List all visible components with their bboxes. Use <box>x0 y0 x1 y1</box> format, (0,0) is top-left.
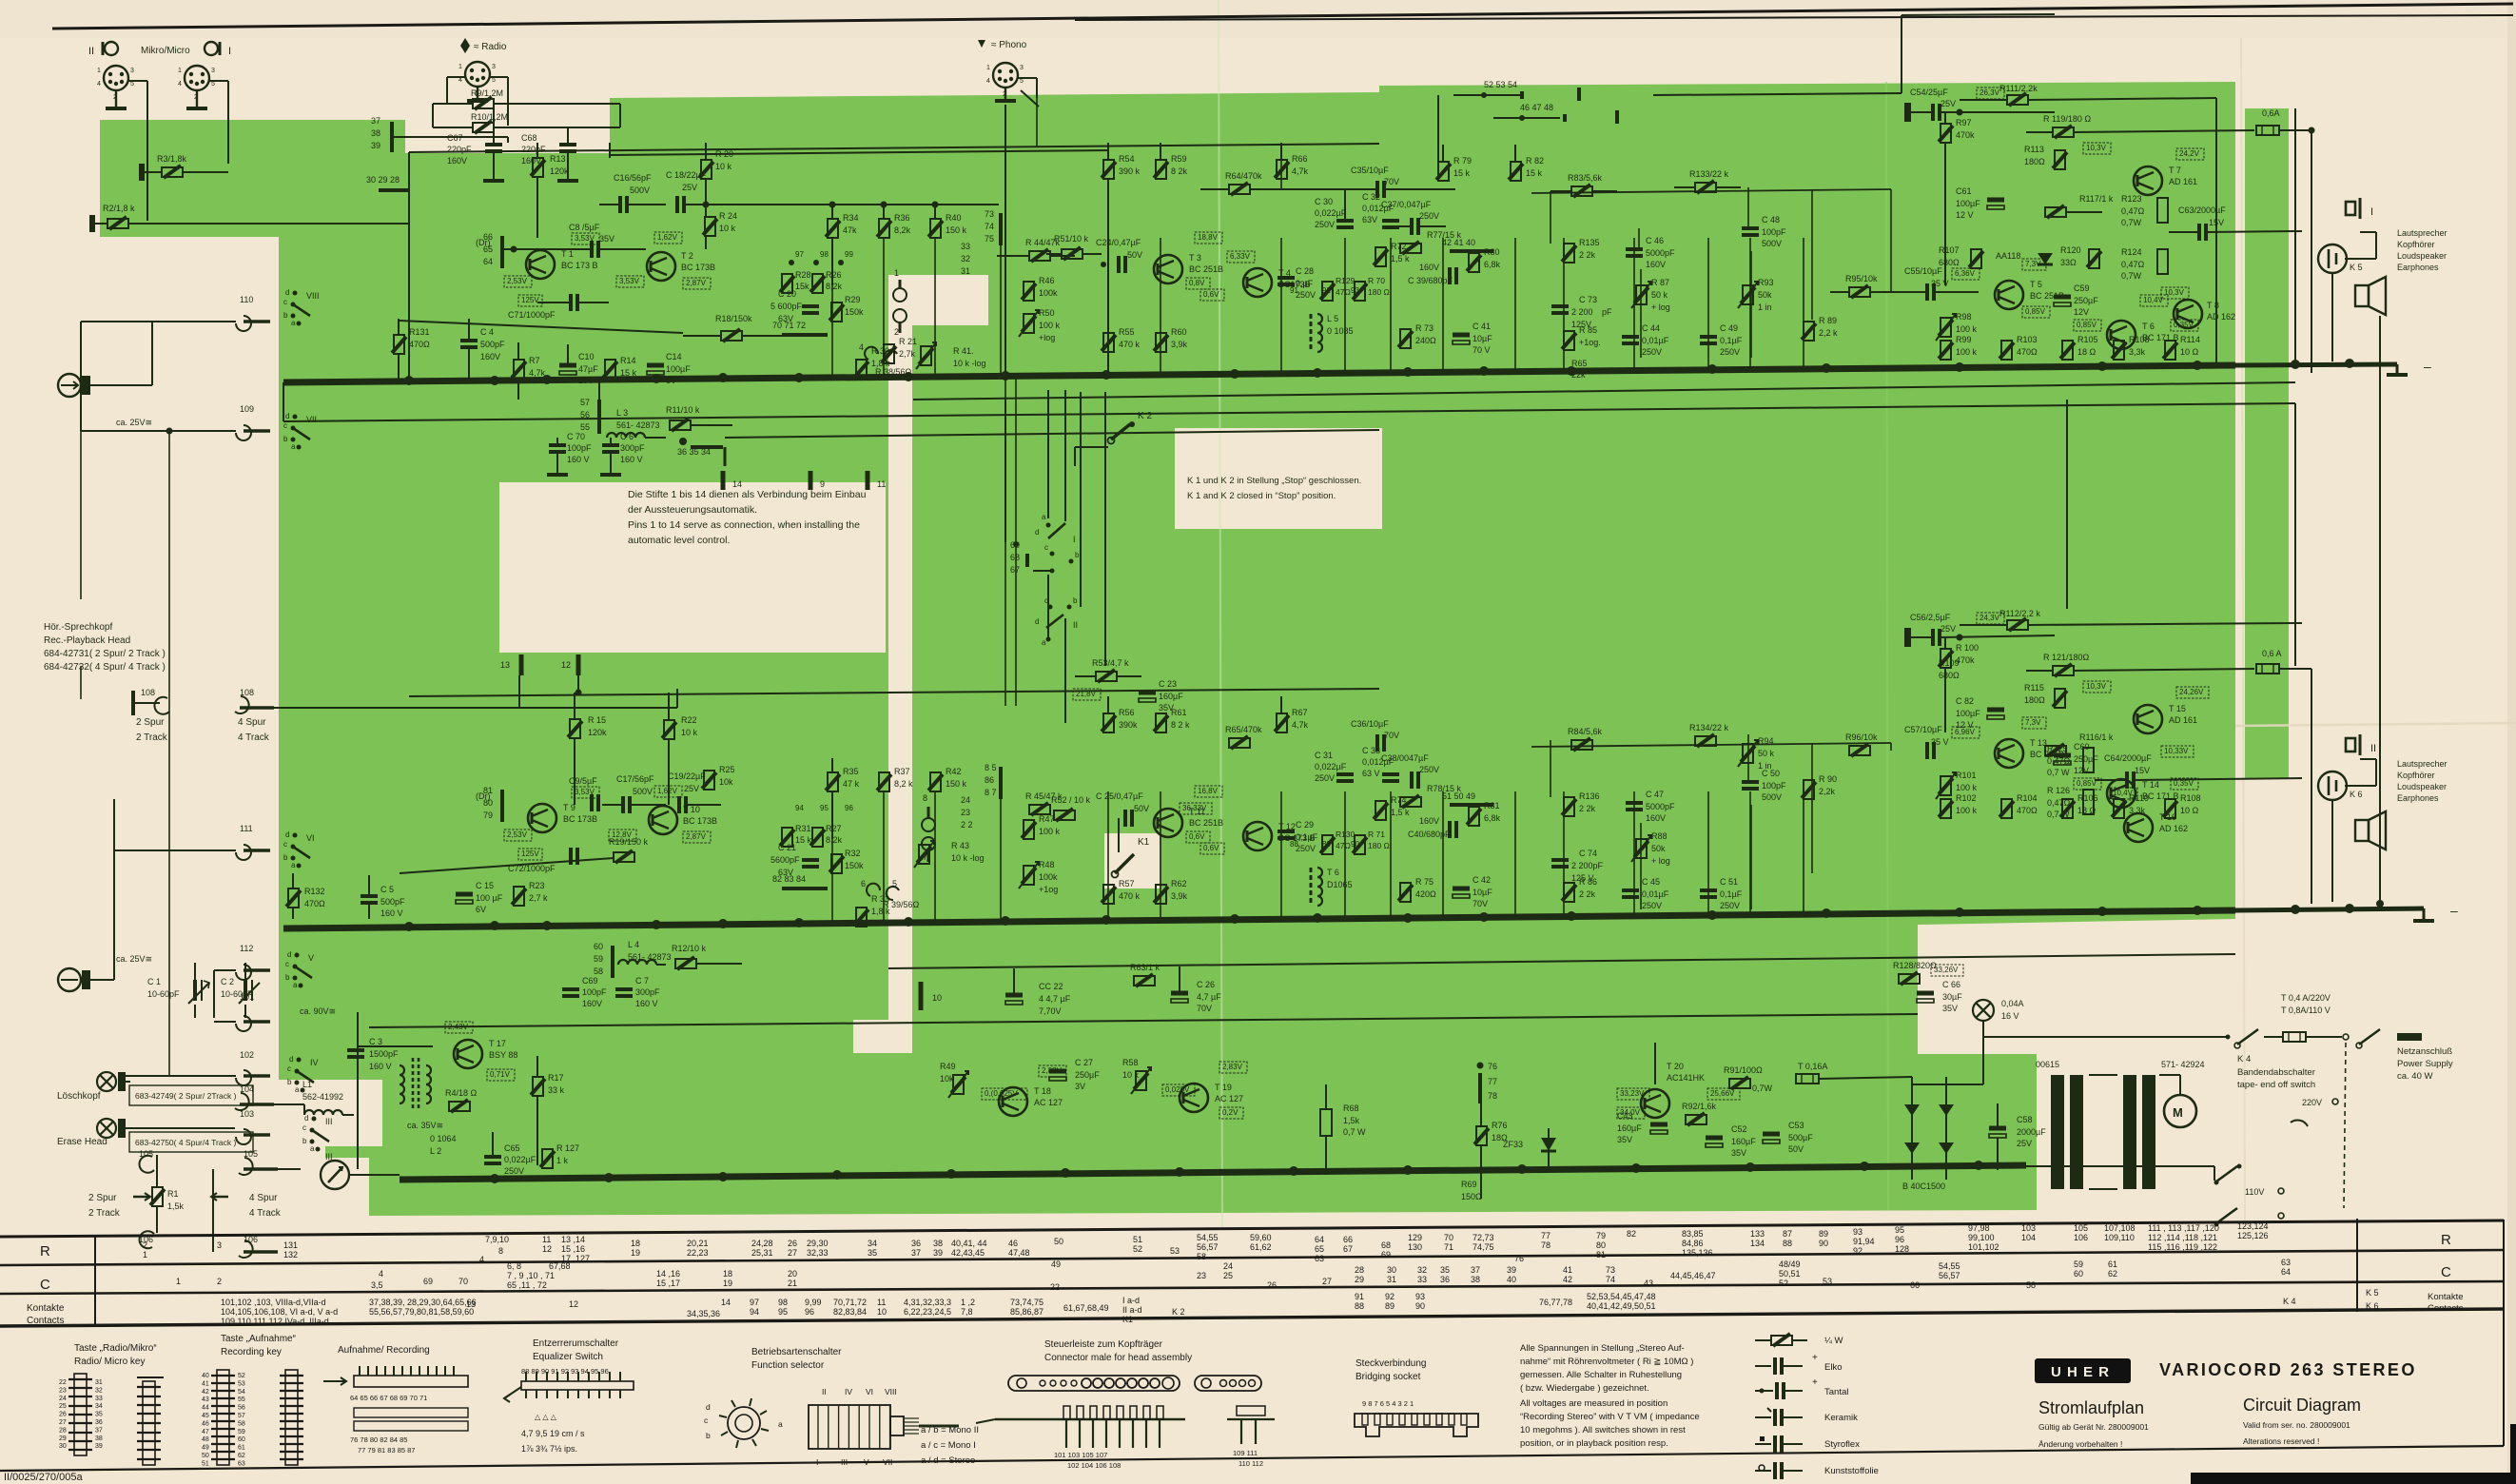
svg-text:R107: R107 <box>1939 245 1960 255</box>
svg-text:35V: 35V <box>599 234 614 244</box>
svg-text:0,6 A: 0,6 A <box>2262 649 2282 658</box>
svg-text:R 70: R 70 <box>1368 276 1385 285</box>
svg-text:R123: R123 <box>2121 194 2142 204</box>
svg-text:15 ,16: 15 ,16 <box>561 1244 585 1254</box>
svg-text:1: 1 <box>97 68 101 74</box>
svg-text:T 15: T 15 <box>2169 704 2186 713</box>
svg-text:10 Ω: 10 Ω <box>2180 347 2199 357</box>
svg-text:a: a <box>295 1085 300 1094</box>
svg-text:R81: R81 <box>1484 801 1500 810</box>
svg-text:92: 92 <box>1853 1246 1863 1256</box>
svg-text:33,23V: 33,23V <box>1620 1089 1645 1098</box>
svg-text:8,2k: 8,2k <box>894 225 911 235</box>
svg-text:Alle Spannungen in Stellung: Alle Spannungen in Stellung „Stereo Auf- <box>1520 1343 1685 1354</box>
svg-text:8: 8 <box>498 1246 503 1256</box>
svg-text:R83/5,6k: R83/5,6k <box>1568 173 1603 183</box>
svg-text:23: 23 <box>961 808 970 817</box>
svg-text:R128/820Ω: R128/820Ω <box>1893 961 1937 970</box>
svg-text:R58: R58 <box>1122 1058 1139 1067</box>
svg-text:24: 24 <box>961 795 970 805</box>
svg-text:R 121/180Ω: R 121/180Ω <box>2043 653 2090 662</box>
svg-text:0,1µF: 0,1µF <box>1720 336 1743 345</box>
svg-text:R14: R14 <box>620 356 636 365</box>
svg-text:d: d <box>287 950 291 959</box>
svg-text:160V: 160V <box>1419 816 1439 826</box>
svg-text:10µF: 10µF <box>1473 334 1492 343</box>
svg-text:b: b <box>1073 596 1078 605</box>
svg-text:104: 104 <box>2021 1233 2036 1242</box>
svg-text:R27: R27 <box>826 824 842 833</box>
svg-text:K1: K1 <box>1122 1315 1133 1324</box>
svg-text:T 14: T 14 <box>2142 780 2159 790</box>
svg-text:20,21: 20,21 <box>687 1239 709 1248</box>
svg-text:40,41,42,49,50,51: 40,41,42,49,50,51 <box>1587 1301 1656 1311</box>
svg-text:R18/150k: R18/150k <box>715 314 752 323</box>
svg-text:Änderung vorbehalten !: Änderung vorbehalten ! <box>2038 1439 2122 1449</box>
svg-text:91: 91 <box>1355 1292 1364 1301</box>
svg-text:R69: R69 <box>1461 1180 1477 1189</box>
svg-text:R62: R62 <box>1171 879 1187 888</box>
svg-text:R102: R102 <box>1956 793 1977 803</box>
svg-text:500µF: 500µF <box>1788 1133 1813 1142</box>
svg-text:R25: R25 <box>719 765 735 774</box>
svg-text:111: 111 <box>240 824 253 833</box>
svg-text:BC 173 B: BC 173 B <box>561 261 598 270</box>
svg-text:100µF: 100µF <box>1956 199 1980 208</box>
svg-text:+log: +log <box>1039 333 1055 342</box>
svg-text:2,83V: 2,83V <box>1222 1063 1243 1071</box>
svg-text:5000pF: 5000pF <box>1646 248 1675 258</box>
svg-text:R99: R99 <box>1956 335 1972 344</box>
svg-text:33,26V: 33,26V <box>1934 966 1959 974</box>
svg-text:680Ω: 680Ω <box>1939 671 1960 680</box>
svg-text:R68: R68 <box>1343 1103 1359 1113</box>
svg-text:10,33V: 10,33V <box>2164 747 2189 755</box>
svg-text:T 17: T 17 <box>489 1039 506 1048</box>
svg-text:48: 48 <box>202 1436 209 1443</box>
svg-text:V: V <box>864 1457 869 1467</box>
svg-text:R101: R101 <box>1956 771 1977 780</box>
svg-text:0,01µF: 0,01µF <box>1642 336 1669 345</box>
svg-text:IV: IV <box>845 1387 852 1396</box>
svg-text:390k: 390k <box>1119 720 1138 730</box>
svg-text:100 k: 100 k <box>1956 324 1978 334</box>
svg-text:8,2k: 8,2k <box>826 835 843 845</box>
svg-text:33: 33 <box>1417 1275 1427 1284</box>
svg-text:C 23: C 23 <box>1159 679 1177 689</box>
svg-text:K 1 and K 2 closed in “Stop” p: K 1 and K 2 closed in “Stop” position. <box>1187 491 1336 501</box>
svg-text:3: 3 <box>492 64 496 70</box>
svg-text:R108: R108 <box>2129 335 2150 344</box>
svg-text:31: 31 <box>1387 1275 1396 1284</box>
svg-text:I: I <box>228 46 231 57</box>
svg-text:VI: VI <box>306 833 315 843</box>
svg-text:26,3V: 26,3V <box>1980 88 2000 97</box>
svg-text:14 ,16: 14 ,16 <box>656 1269 680 1279</box>
svg-text:29,30: 29,30 <box>807 1239 829 1248</box>
svg-text:Loudspeaker: Loudspeaker <box>2397 782 2447 791</box>
svg-text:Hör.-Sprechkopf: Hör.-Sprechkopf <box>44 622 112 633</box>
svg-text:29: 29 <box>1355 1275 1364 1284</box>
svg-text:C 46: C 46 <box>1646 236 1664 245</box>
svg-text:250V: 250V <box>504 1166 524 1176</box>
svg-text:10 Ω: 10 Ω <box>2180 806 2199 815</box>
svg-text:b: b <box>706 1431 711 1440</box>
svg-text:96: 96 <box>1895 1235 1904 1244</box>
svg-text:R17: R17 <box>548 1073 564 1083</box>
svg-text:1: 1 <box>178 68 182 74</box>
svg-text:6V: 6V <box>476 905 486 914</box>
svg-text:C 45: C 45 <box>1642 877 1660 887</box>
svg-text:R59: R59 <box>1171 154 1187 164</box>
svg-text:100pF: 100pF <box>582 987 607 997</box>
svg-text:C19/22µF: C19/22µF <box>668 771 706 781</box>
svg-text:34,35,36: 34,35,36 <box>687 1309 720 1318</box>
svg-text:300pF: 300pF <box>635 987 660 997</box>
svg-text:35V: 35V <box>1159 703 1174 713</box>
svg-text:106: 106 <box>2074 1233 2088 1242</box>
svg-text:II: II <box>2370 743 2376 754</box>
svg-text:66: 66 <box>1910 1280 1920 1290</box>
svg-text:1: 1 <box>986 65 990 71</box>
svg-text:562-41992: 562-41992 <box>302 1092 343 1102</box>
svg-text:129: 129 <box>1408 1233 1422 1242</box>
svg-text:T 10: T 10 <box>683 805 700 814</box>
svg-text:III: III <box>325 1117 333 1126</box>
svg-text:Styroflex: Styroflex <box>1824 1439 1860 1450</box>
svg-text:85,86,87: 85,86,87 <box>1010 1307 1043 1317</box>
svg-text:C36/10µF: C36/10µF <box>1351 719 1389 729</box>
svg-text:128: 128 <box>1895 1244 1909 1254</box>
svg-text:15 k: 15 k <box>795 835 812 845</box>
svg-text:3,3k: 3,3k <box>2129 347 2146 357</box>
svg-text:II: II <box>1073 620 1078 630</box>
svg-text:19: 19 <box>631 1248 640 1258</box>
svg-text:C 66: C 66 <box>1942 980 1960 989</box>
svg-text:31: 31 <box>95 1379 103 1386</box>
svg-text:10,3V: 10,3V <box>2086 682 2107 691</box>
svg-text:683-42749( 2 Spur/ 2Track ): 683-42749( 2 Spur/ 2Track ) <box>135 1091 237 1101</box>
svg-text:109,110,111,112 IVa-d,: 109,110,111,112 IVa-d, IIIa-d <box>221 1317 329 1326</box>
svg-text:1: 1 <box>458 64 462 70</box>
svg-text:25: 25 <box>59 1403 67 1410</box>
svg-text:73: 73 <box>1606 1265 1615 1275</box>
svg-text:15k: 15k <box>795 282 809 291</box>
svg-text:R 85: R 85 <box>1579 325 1597 335</box>
svg-text:8 5: 8 5 <box>985 763 997 772</box>
svg-text:0,85V: 0,85V <box>2077 779 2097 788</box>
svg-text:AC 127: AC 127 <box>1034 1098 1063 1107</box>
svg-text:150k: 150k <box>845 307 864 317</box>
svg-text:76: 76 <box>1514 1254 1524 1263</box>
svg-text:103: 103 <box>240 1109 254 1119</box>
svg-text:1,62V: 1,62V <box>657 787 678 795</box>
svg-text:Recording key: Recording key <box>221 1347 282 1357</box>
svg-text:2 Track: 2 Track <box>88 1208 121 1219</box>
svg-text:T 3: T 3 <box>1189 253 1201 263</box>
svg-text:42,43,45: 42,43,45 <box>951 1248 985 1258</box>
svg-text:2,2k: 2,2k <box>1819 787 1836 796</box>
svg-text:20: 20 <box>788 1269 797 1279</box>
svg-text:R103: R103 <box>2017 335 2038 344</box>
svg-text:250V: 250V <box>1296 290 1316 300</box>
svg-text:160V: 160V <box>582 999 602 1008</box>
svg-text:25: 25 <box>1223 1271 1233 1280</box>
svg-text:46: 46 <box>1008 1239 1018 1248</box>
svg-text:101,102 ,103, VIIIa-d,VIIa-d: 101,102 ,103, VIIIa-d,VIIa-d <box>221 1298 326 1307</box>
svg-text:74,75: 74,75 <box>1473 1242 1494 1252</box>
svg-text:R 89: R 89 <box>1819 316 1837 325</box>
svg-text:2 Spur: 2 Spur <box>136 717 165 728</box>
svg-text:89: 89 <box>1819 1229 1828 1239</box>
svg-text:98: 98 <box>820 250 829 259</box>
svg-text:Erase Head: Erase Head <box>57 1137 107 1147</box>
svg-text:88 89 90 91 92 93 94 95: 88 89 90 91 92 93 94 95 96 <box>521 1367 609 1376</box>
svg-text:C 27: C 27 <box>1075 1058 1093 1067</box>
svg-text:6,8k: 6,8k <box>1484 813 1501 823</box>
svg-text:2 200: 2 200 <box>1571 307 1593 317</box>
svg-text:27: 27 <box>59 1419 67 1426</box>
svg-text:87: 87 <box>1783 1229 1792 1239</box>
svg-text:94: 94 <box>795 804 804 812</box>
svg-text:68: 68 <box>1381 1240 1391 1250</box>
svg-text:K 4: K 4 <box>2283 1297 2296 1306</box>
svg-text:41: 41 <box>1563 1265 1572 1275</box>
svg-text:58: 58 <box>1197 1252 1206 1261</box>
svg-text:0,7W: 0,7W <box>2121 218 2142 227</box>
svg-text:47: 47 <box>202 1429 209 1435</box>
svg-text:45: 45 <box>202 1413 209 1419</box>
svg-text:15 k: 15 k <box>620 368 637 378</box>
svg-text:24: 24 <box>59 1396 67 1402</box>
svg-text:65: 65 <box>483 244 493 254</box>
svg-text:40,41, 44: 40,41, 44 <box>951 1239 987 1248</box>
svg-text:50 k: 50 k <box>1651 290 1668 300</box>
svg-text:100 k: 100 k <box>1956 806 1978 815</box>
svg-text:32: 32 <box>95 1387 103 1394</box>
svg-text:R92/1,6k: R92/1,6k <box>1682 1102 1717 1111</box>
svg-text:13: 13 <box>500 660 510 670</box>
svg-text:97: 97 <box>750 1298 759 1307</box>
svg-text:R 43: R 43 <box>951 841 969 850</box>
svg-text:35V: 35V <box>1942 1004 1958 1013</box>
svg-text:R26: R26 <box>826 270 842 280</box>
svg-text:77 79 81 83 85 87: 77 79 81 83 85 87 <box>358 1446 415 1455</box>
svg-text:69: 69 <box>1381 1250 1391 1259</box>
svg-text:I: I <box>2370 206 2373 218</box>
svg-text:R1: R1 <box>167 1189 179 1199</box>
svg-text:△ △ △: △ △ △ <box>535 1413 557 1421</box>
svg-text:33: 33 <box>95 1396 103 1402</box>
svg-text:34: 34 <box>95 1403 103 1410</box>
svg-text:52: 52 <box>238 1373 245 1379</box>
svg-text:32: 32 <box>1417 1265 1427 1275</box>
svg-text:AD 162: AD 162 <box>2159 824 2188 833</box>
svg-text:BC 173B: BC 173B <box>563 814 597 824</box>
svg-text:10-60pF: 10-60pF <box>147 989 180 999</box>
svg-text:Entzerrerumschalter: Entzerrerumschalter <box>533 1338 619 1349</box>
svg-text:5: 5 <box>1020 78 1024 85</box>
svg-text:C53: C53 <box>1788 1121 1804 1130</box>
svg-text:R72: R72 <box>1391 242 1407 251</box>
svg-text:R55: R55 <box>1119 327 1135 337</box>
svg-text:7,70V: 7,70V <box>1039 1006 1062 1016</box>
svg-text:3,9k: 3,9k <box>1171 891 1188 901</box>
svg-text:500pF: 500pF <box>380 897 405 907</box>
svg-text:15V: 15V <box>2135 766 2150 775</box>
svg-text:IV: IV <box>310 1058 319 1067</box>
svg-text:position, or in playback po: position, or in playback position resp. <box>1520 1438 1668 1449</box>
svg-text:1,5k: 1,5k <box>167 1201 185 1211</box>
svg-text:32,33: 32,33 <box>807 1248 829 1258</box>
svg-text:0,8V: 0,8V <box>1189 279 1205 287</box>
svg-text:6: 6 <box>861 879 866 888</box>
svg-text:K 5: K 5 <box>2366 1288 2379 1298</box>
svg-text:c: c <box>283 421 287 430</box>
svg-text:Gültig ab Gerät Nr. 2800090: Gültig ab Gerät Nr. 280009001 <box>2038 1422 2149 1432</box>
svg-text:C 21: C 21 <box>778 843 796 852</box>
svg-text:81: 81 <box>483 786 493 795</box>
svg-text:R51/10 k: R51/10 k <box>1054 234 1089 244</box>
svg-text:72,73: 72,73 <box>1473 1233 1494 1242</box>
svg-text:500V: 500V <box>1762 239 1782 248</box>
svg-text:67,68: 67,68 <box>549 1261 571 1271</box>
svg-text:58: 58 <box>238 1420 245 1427</box>
svg-text:250V: 250V <box>1315 773 1335 783</box>
svg-text:470Ω: 470Ω <box>409 340 430 349</box>
svg-text:180 Ω: 180 Ω <box>1368 287 1390 297</box>
svg-text:R49: R49 <box>940 1062 956 1071</box>
svg-text:50V: 50V <box>1134 804 1149 813</box>
svg-text:250V: 250V <box>1642 901 1662 910</box>
svg-text:5: 5 <box>130 81 134 88</box>
svg-text:58: 58 <box>2026 1280 2036 1290</box>
svg-text:42: 42 <box>1563 1275 1572 1284</box>
svg-text:R37: R37 <box>894 767 910 776</box>
svg-text:K 6: K 6 <box>2366 1301 2379 1311</box>
svg-text:b: b <box>287 1078 292 1086</box>
svg-text:35: 35 <box>95 1412 103 1418</box>
svg-text:8,2 k: 8,2 k <box>894 779 913 789</box>
svg-text:C40/680pF: C40/680pF <box>1408 830 1451 839</box>
svg-text:ca. 40 W: ca. 40 W <box>2397 1071 2433 1082</box>
svg-text:R124: R124 <box>2121 247 2142 257</box>
svg-text:160µF: 160µF <box>1159 692 1183 701</box>
svg-text:37: 37 <box>1471 1265 1480 1275</box>
svg-text:132: 132 <box>283 1250 298 1259</box>
svg-text:3: 3 <box>211 68 215 74</box>
svg-text:Contacts: Contacts <box>2428 1303 2464 1314</box>
svg-text:52,53,54,45,47,48: 52,53,54,45,47,48 <box>1587 1292 1656 1301</box>
svg-text:C 20: C 20 <box>778 289 796 299</box>
svg-text:III: III <box>841 1457 848 1467</box>
svg-text:21: 21 <box>788 1279 797 1288</box>
svg-text:BSY 88: BSY 88 <box>489 1050 517 1060</box>
svg-text:250V: 250V <box>1419 765 1439 774</box>
svg-text:2,53V: 2,53V <box>507 830 528 839</box>
svg-text:11: 11 <box>542 1235 551 1244</box>
svg-text:0,6A: 0,6A <box>2262 108 2280 118</box>
svg-text:R106: R106 <box>2077 793 2098 803</box>
svg-text:K 2: K 2 <box>1172 1307 1185 1317</box>
svg-text:a / c = Mono I: a / c = Mono I <box>921 1440 976 1451</box>
svg-text:R91/100Ω: R91/100Ω <box>1724 1065 1763 1075</box>
svg-text:R12/10 k: R12/10 k <box>672 944 707 953</box>
svg-text:gemessen. Alle Schalter in R: gemessen. Alle Schalter in Ruhestellung <box>1520 1370 1682 1380</box>
svg-text:pF: pF <box>1602 307 1612 317</box>
svg-text:18: 18 <box>723 1269 732 1279</box>
svg-text:2 200pF: 2 200pF <box>1571 861 1604 870</box>
svg-text:61: 61 <box>2108 1259 2117 1269</box>
svg-text:R80: R80 <box>1484 247 1500 257</box>
svg-text:T 0,4 A/220V: T 0,4 A/220V <box>2281 993 2331 1003</box>
svg-text:R 100: R 100 <box>1956 643 1979 653</box>
svg-text:0,µF: 0,µF <box>1296 279 1314 288</box>
svg-text:Pins 1 to 14 serve as connect: Pins 1 to 14 serve as connection, when i… <box>628 519 860 531</box>
svg-text:44: 44 <box>202 1405 209 1412</box>
svg-text:C38/0047µF: C38/0047µF <box>1381 753 1429 763</box>
svg-text:C 4: C 4 <box>480 327 494 337</box>
svg-text:R 75: R 75 <box>1415 877 1434 887</box>
svg-text:R 38/56Ω: R 38/56Ω <box>875 367 912 377</box>
svg-text:4 Spur: 4 Spur <box>238 717 266 728</box>
svg-text:64: 64 <box>2281 1267 2291 1277</box>
svg-text:4: 4 <box>97 81 101 88</box>
svg-text:70V: 70V <box>1197 1004 1212 1013</box>
svg-text:Mikro/Micro: Mikro/Micro <box>141 46 190 56</box>
svg-text:C17/56pF: C17/56pF <box>616 774 654 784</box>
svg-text:R 73: R 73 <box>1415 323 1434 333</box>
svg-text:4 Track: 4 Track <box>238 732 270 743</box>
svg-text:R76: R76 <box>1492 1121 1508 1130</box>
svg-text:58: 58 <box>594 967 603 976</box>
svg-text:3,5: 3,5 <box>371 1280 383 1290</box>
svg-text:R: R <box>2441 1232 2451 1248</box>
svg-text:99,100: 99,100 <box>1968 1233 1995 1242</box>
svg-text:d: d <box>1035 617 1039 626</box>
svg-text:10 k: 10 k <box>715 162 732 171</box>
svg-text:ca. 90V≅: ca. 90V≅ <box>300 1006 336 1016</box>
svg-text:C10: C10 <box>578 352 595 361</box>
svg-text:+ log: + log <box>1651 303 1670 312</box>
svg-text:250µF: 250µF <box>1075 1070 1100 1080</box>
svg-text:C61: C61 <box>1956 186 1972 196</box>
svg-text:II: II <box>88 46 94 57</box>
svg-text:470Ω: 470Ω <box>304 899 325 908</box>
svg-text:c: c <box>1044 543 1048 552</box>
svg-text:R35: R35 <box>843 767 859 776</box>
svg-text:25V: 25V <box>682 183 697 192</box>
svg-text:C52: C52 <box>1731 1124 1747 1134</box>
svg-text:1: 1 <box>894 268 899 278</box>
svg-text:104,105,106,108, VI a-d, V a-: 104,105,106,108, VI a-d, V a-d <box>221 1307 338 1317</box>
svg-text:4,31,32,33,3: 4,31,32,33,3 <box>904 1298 951 1307</box>
svg-text:49: 49 <box>1051 1259 1061 1269</box>
svg-text:M: M <box>2173 1105 2183 1120</box>
svg-text:120k: 120k <box>550 166 569 176</box>
svg-text:T 0,8A/110 V: T 0,8A/110 V <box>2281 1006 2331 1015</box>
svg-text:51: 51 <box>202 1460 209 1467</box>
svg-text:10: 10 <box>877 1307 887 1317</box>
svg-text:10,3V: 10,3V <box>2164 288 2185 297</box>
svg-text:R96/10k: R96/10k <box>1845 732 1878 742</box>
svg-text:22,23: 22,23 <box>687 1248 709 1258</box>
svg-text:R65: R65 <box>1571 359 1588 368</box>
svg-text:4,7 9,5 19 cm / s: 4,7 9,5 19 cm / s <box>521 1429 585 1438</box>
svg-text:100pF: 100pF <box>567 443 592 453</box>
svg-text:R 79: R 79 <box>1453 156 1472 166</box>
svg-text:22: 22 <box>59 1379 67 1386</box>
